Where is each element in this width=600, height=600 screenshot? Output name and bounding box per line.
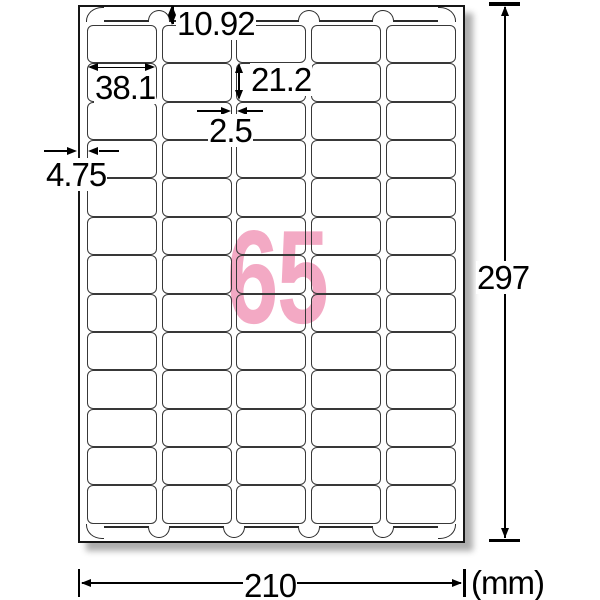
arrow-down-icon [235, 90, 243, 100]
arrow-left-icon [88, 147, 98, 155]
label-cell [311, 255, 381, 293]
dim-column-gap-value: 2.5 [208, 114, 253, 147]
die-cut-shape [104, 20, 148, 21]
label-cell [236, 255, 306, 293]
label-cell [386, 332, 456, 370]
label-cell [87, 447, 157, 485]
label-cell [311, 140, 381, 178]
label-cell [311, 409, 381, 447]
die-cut-shape [320, 20, 373, 21]
label-cell [311, 485, 381, 523]
dim-label-width-value: 38.1 [94, 71, 156, 104]
label-cell [311, 370, 381, 408]
label-cell [87, 294, 157, 332]
label-cell [162, 255, 232, 293]
label-cell [87, 332, 157, 370]
label-cell [162, 409, 232, 447]
unit-label: (mm) [470, 566, 545, 599]
label-cell [162, 294, 232, 332]
dim-side-margin-value: 4.75 [45, 158, 107, 191]
dim-line [90, 67, 153, 69]
die-cut-shape [320, 526, 373, 527]
die-cut-shape [104, 526, 148, 527]
dim-tick [489, 539, 520, 543]
label-cell [311, 63, 381, 101]
label-cell [236, 294, 306, 332]
label-cell [386, 25, 456, 63]
dim-line [99, 150, 119, 152]
label-cell [236, 370, 306, 408]
dim-sheet-width-value: 210 [243, 569, 297, 600]
dim-line [44, 150, 68, 152]
label-cell [386, 485, 456, 523]
dim-label-height-value: 21.2 [250, 63, 312, 96]
die-cut-shape [170, 526, 223, 527]
label-cell [162, 370, 232, 408]
label-cell [386, 140, 456, 178]
arrow-right-icon [452, 579, 462, 587]
label-cell [87, 255, 157, 293]
label-cell [87, 485, 157, 523]
label-cell [236, 217, 306, 255]
label-cell [162, 447, 232, 485]
label-cell [162, 332, 232, 370]
arrow-left-icon [81, 579, 91, 587]
label-cell [87, 409, 157, 447]
label-cell [386, 63, 456, 101]
label-cell [87, 102, 157, 140]
label-cell [162, 63, 232, 101]
label-cell [162, 178, 232, 216]
label-cell [386, 447, 456, 485]
die-cut-shape [245, 526, 298, 527]
arrow-down-icon [168, 15, 176, 25]
label-cell [386, 217, 456, 255]
arrow-down-icon [501, 528, 509, 538]
die-cut-shape [394, 526, 438, 527]
label-cell [311, 102, 381, 140]
label-cell [386, 294, 456, 332]
dim-tick [489, 2, 520, 6]
dim-sheet-height-value: 297 [476, 261, 530, 294]
label-sheet-diagram: 65 10.92 38.1 21.2 2.5 4.75 [0, 0, 600, 600]
label-cell [386, 370, 456, 408]
label-cell [386, 178, 456, 216]
label-cell [236, 409, 306, 447]
dim-tick [463, 569, 466, 597]
label-cell [236, 332, 306, 370]
label-cell [386, 255, 456, 293]
dim-tick [78, 569, 81, 597]
arrow-up-icon [168, 5, 176, 15]
label-cell [162, 485, 232, 523]
arrow-right-icon [67, 147, 77, 155]
arrow-up-icon [501, 6, 509, 16]
label-cell [311, 217, 381, 255]
label-cell [87, 370, 157, 408]
label-cell [236, 485, 306, 523]
label-cell [311, 294, 381, 332]
label-cell [87, 217, 157, 255]
label-cell [236, 178, 306, 216]
dim-top-margin-value: 10.92 [176, 7, 256, 40]
arrow-up-icon [235, 63, 243, 73]
label-cell [311, 25, 381, 63]
label-cell [87, 25, 157, 63]
label-cell [311, 447, 381, 485]
label-cell [386, 102, 456, 140]
label-cell [386, 409, 456, 447]
label-cell [162, 217, 232, 255]
label-cell [311, 332, 381, 370]
die-cut-shape [394, 20, 438, 21]
label-cell [311, 178, 381, 216]
label-cell [236, 447, 306, 485]
